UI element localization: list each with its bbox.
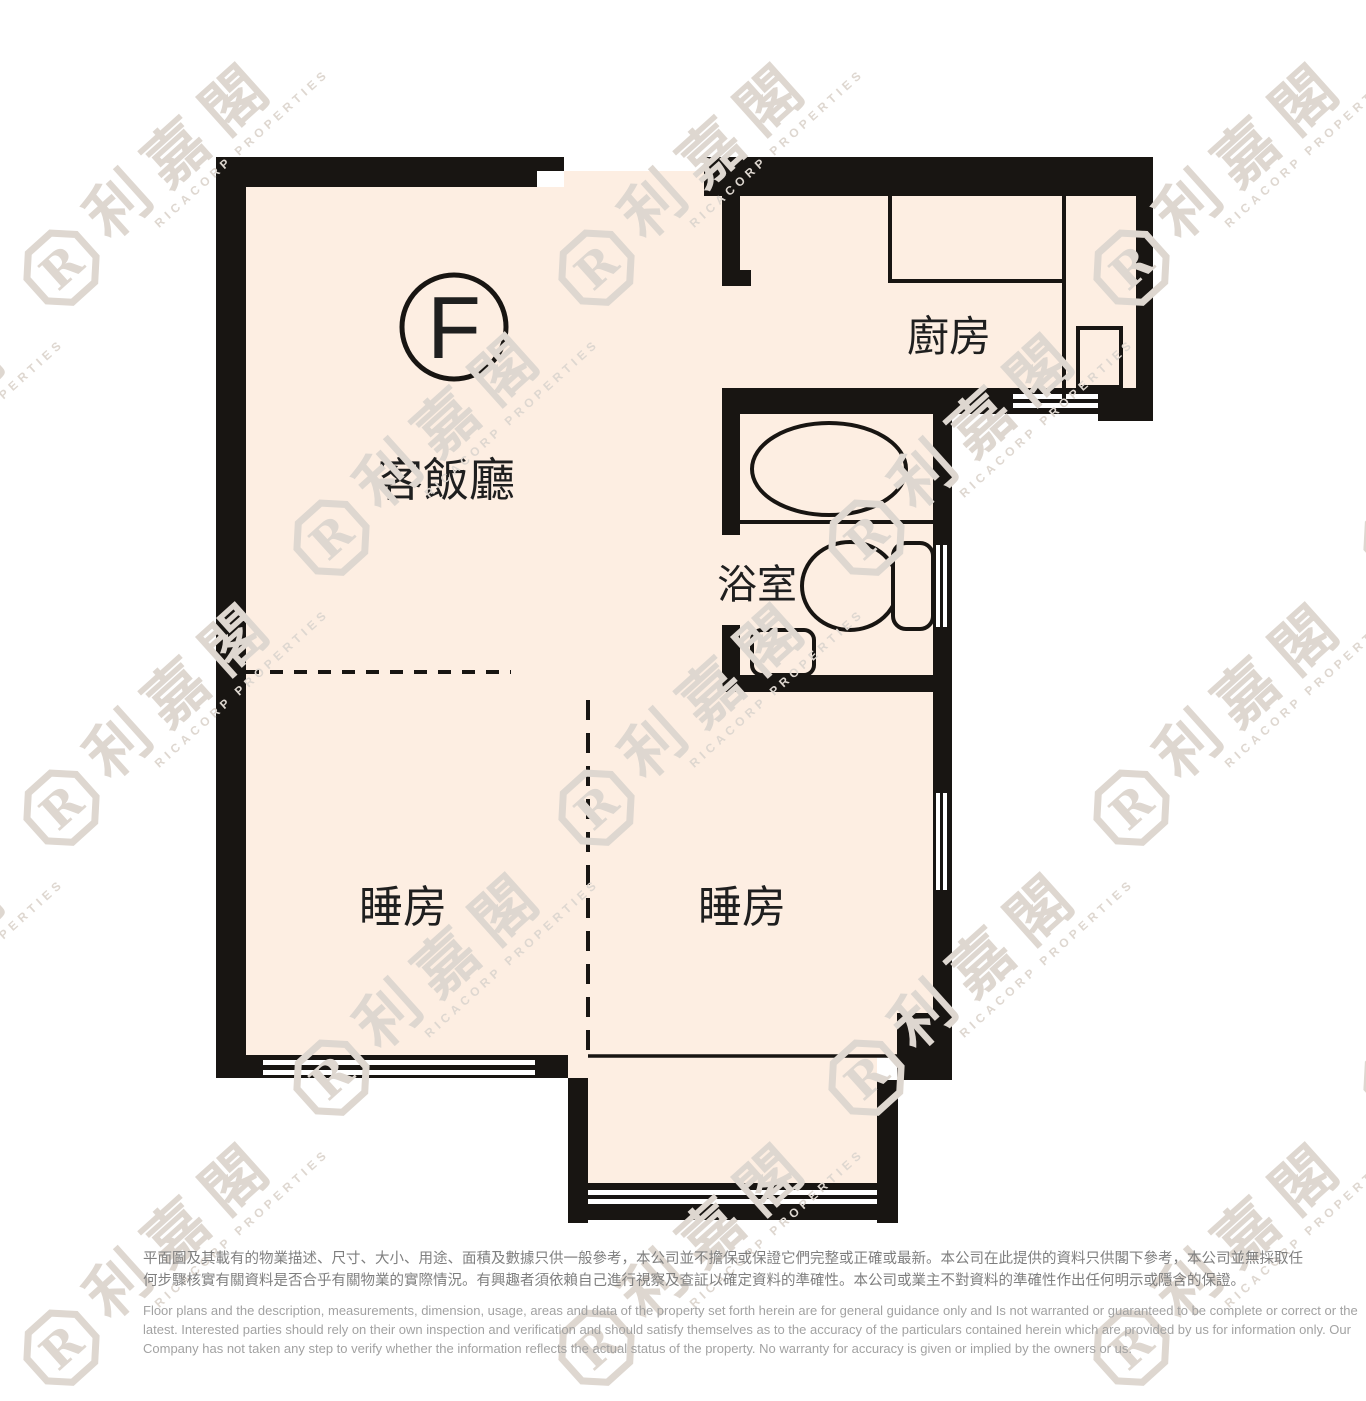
disclaimer-en-line2: latest. Interested parties should rely o… — [143, 1320, 1358, 1339]
wall-corner-bedroom2 — [897, 1013, 952, 1080]
wall-top-living — [216, 157, 537, 187]
kitchen-door-jamb — [722, 270, 751, 286]
entrance-opening — [564, 171, 704, 201]
room-label-bedroom-2: 睡房 — [698, 882, 786, 933]
toilet-cistern — [893, 543, 933, 629]
disclaimer-zh-line2: 何步驟核實有關資料是否合乎有關物業的實際情況。有興趣者須依賴自己進行視察及查証以… — [143, 1270, 1358, 1292]
wall-bathroom-left-lower — [722, 625, 740, 675]
kitchen-sink — [1078, 328, 1121, 387]
floor-fill — [246, 171, 1137, 1187]
wall-right — [933, 414, 952, 1013]
room-label-bedroom-1: 睡房 — [359, 882, 447, 933]
disclaimer-en-line3: Company has not taken any step to verify… — [143, 1339, 1358, 1358]
floor-plan: F 客飯廳 廚房 浴室 睡房 睡房 — [0, 0, 1366, 1366]
wall-corner-kitchen — [1098, 400, 1153, 421]
toilet-bowl — [802, 542, 898, 630]
entrance-door-jamb — [537, 157, 564, 171]
wall-bathroom-bottom — [722, 675, 952, 692]
disclaimer-en-line1: Floor plans and the description, measure… — [143, 1301, 1358, 1320]
wall-left — [216, 157, 246, 1078]
unit-marker-letter: F — [427, 278, 481, 377]
wall-right-kitchen — [1136, 157, 1153, 421]
bay-window-floor — [588, 1055, 877, 1187]
room-label-living-dining: 客飯廳 — [377, 453, 515, 507]
wall-bathroom-left-upper — [722, 414, 740, 535]
disclaimer-zh-line1: 平面圖及其載有的物業描述、尺寸、大小、用途、面積及數據只供一般參考，本公司並不擔… — [143, 1248, 1358, 1270]
wall-kitchen-bottom — [722, 388, 1153, 414]
room-label-kitchen: 廚房 — [907, 312, 991, 361]
disclaimer: 平面圖及其載有的物業描述、尺寸、大小、用途、面積及數據只供一般參考，本公司並不擔… — [143, 1248, 1358, 1358]
wall-top-kitchen — [704, 157, 1153, 196]
room-label-bathroom: 浴室 — [717, 562, 797, 608]
wash-basin — [752, 630, 814, 675]
disclaimer-en: Floor plans and the description, measure… — [143, 1301, 1358, 1358]
